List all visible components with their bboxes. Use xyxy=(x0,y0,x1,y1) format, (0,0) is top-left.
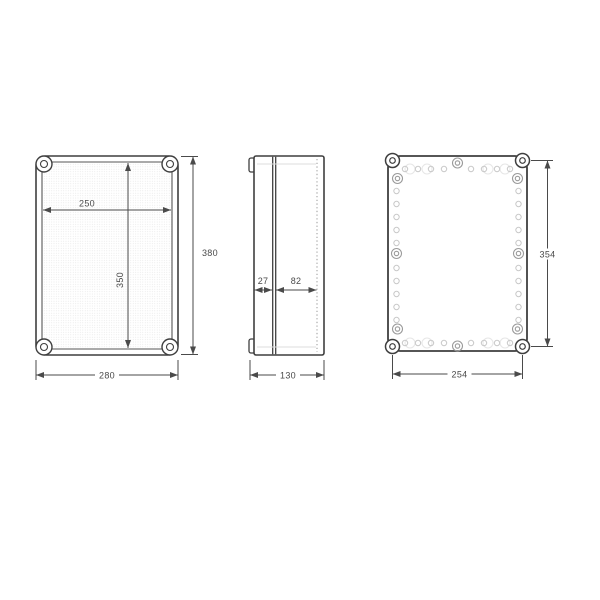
front-overall-width-label: 280 xyxy=(99,371,115,381)
front-overall-height-label: 380 xyxy=(202,248,218,258)
rear-mounting-height-label: 354 xyxy=(540,250,556,260)
screw-icon xyxy=(516,154,530,168)
front-inner-height-label: 350 xyxy=(115,272,125,288)
rear-body xyxy=(388,156,527,351)
front-lid-face xyxy=(42,162,172,349)
side-cover-depth-label: 27 xyxy=(258,276,269,286)
screw-icon xyxy=(162,156,178,172)
screw-icon xyxy=(386,340,400,354)
screw-icon xyxy=(36,156,52,172)
dim-rear-mounting-height: 354 xyxy=(531,161,560,347)
side-base-depth-label: 82 xyxy=(291,276,302,286)
dim-side-overall-depth: 130 xyxy=(250,360,324,381)
screw-icon xyxy=(162,339,178,355)
side-body xyxy=(254,156,324,355)
screw-icon xyxy=(386,154,400,168)
side-overall-depth-label: 130 xyxy=(280,371,296,381)
rear-mounting-width-label: 254 xyxy=(452,370,468,380)
enclosure-dimension-drawing: 250 350 380 280 xyxy=(0,0,600,600)
technical-drawing-canvas: 250 350 380 280 xyxy=(0,0,600,600)
front-inner-width-label: 250 xyxy=(79,199,95,209)
rear-view: 354 254 xyxy=(386,154,560,380)
side-view: 27 82 130 xyxy=(249,156,324,381)
screw-icon xyxy=(516,340,530,354)
dim-rear-mounting-width: 254 xyxy=(393,355,523,380)
dim-front-overall-width: 280 xyxy=(36,360,178,381)
screw-icon xyxy=(36,339,52,355)
front-view: 250 350 380 280 xyxy=(36,156,218,381)
dim-front-overall-height: 380 xyxy=(181,157,218,355)
